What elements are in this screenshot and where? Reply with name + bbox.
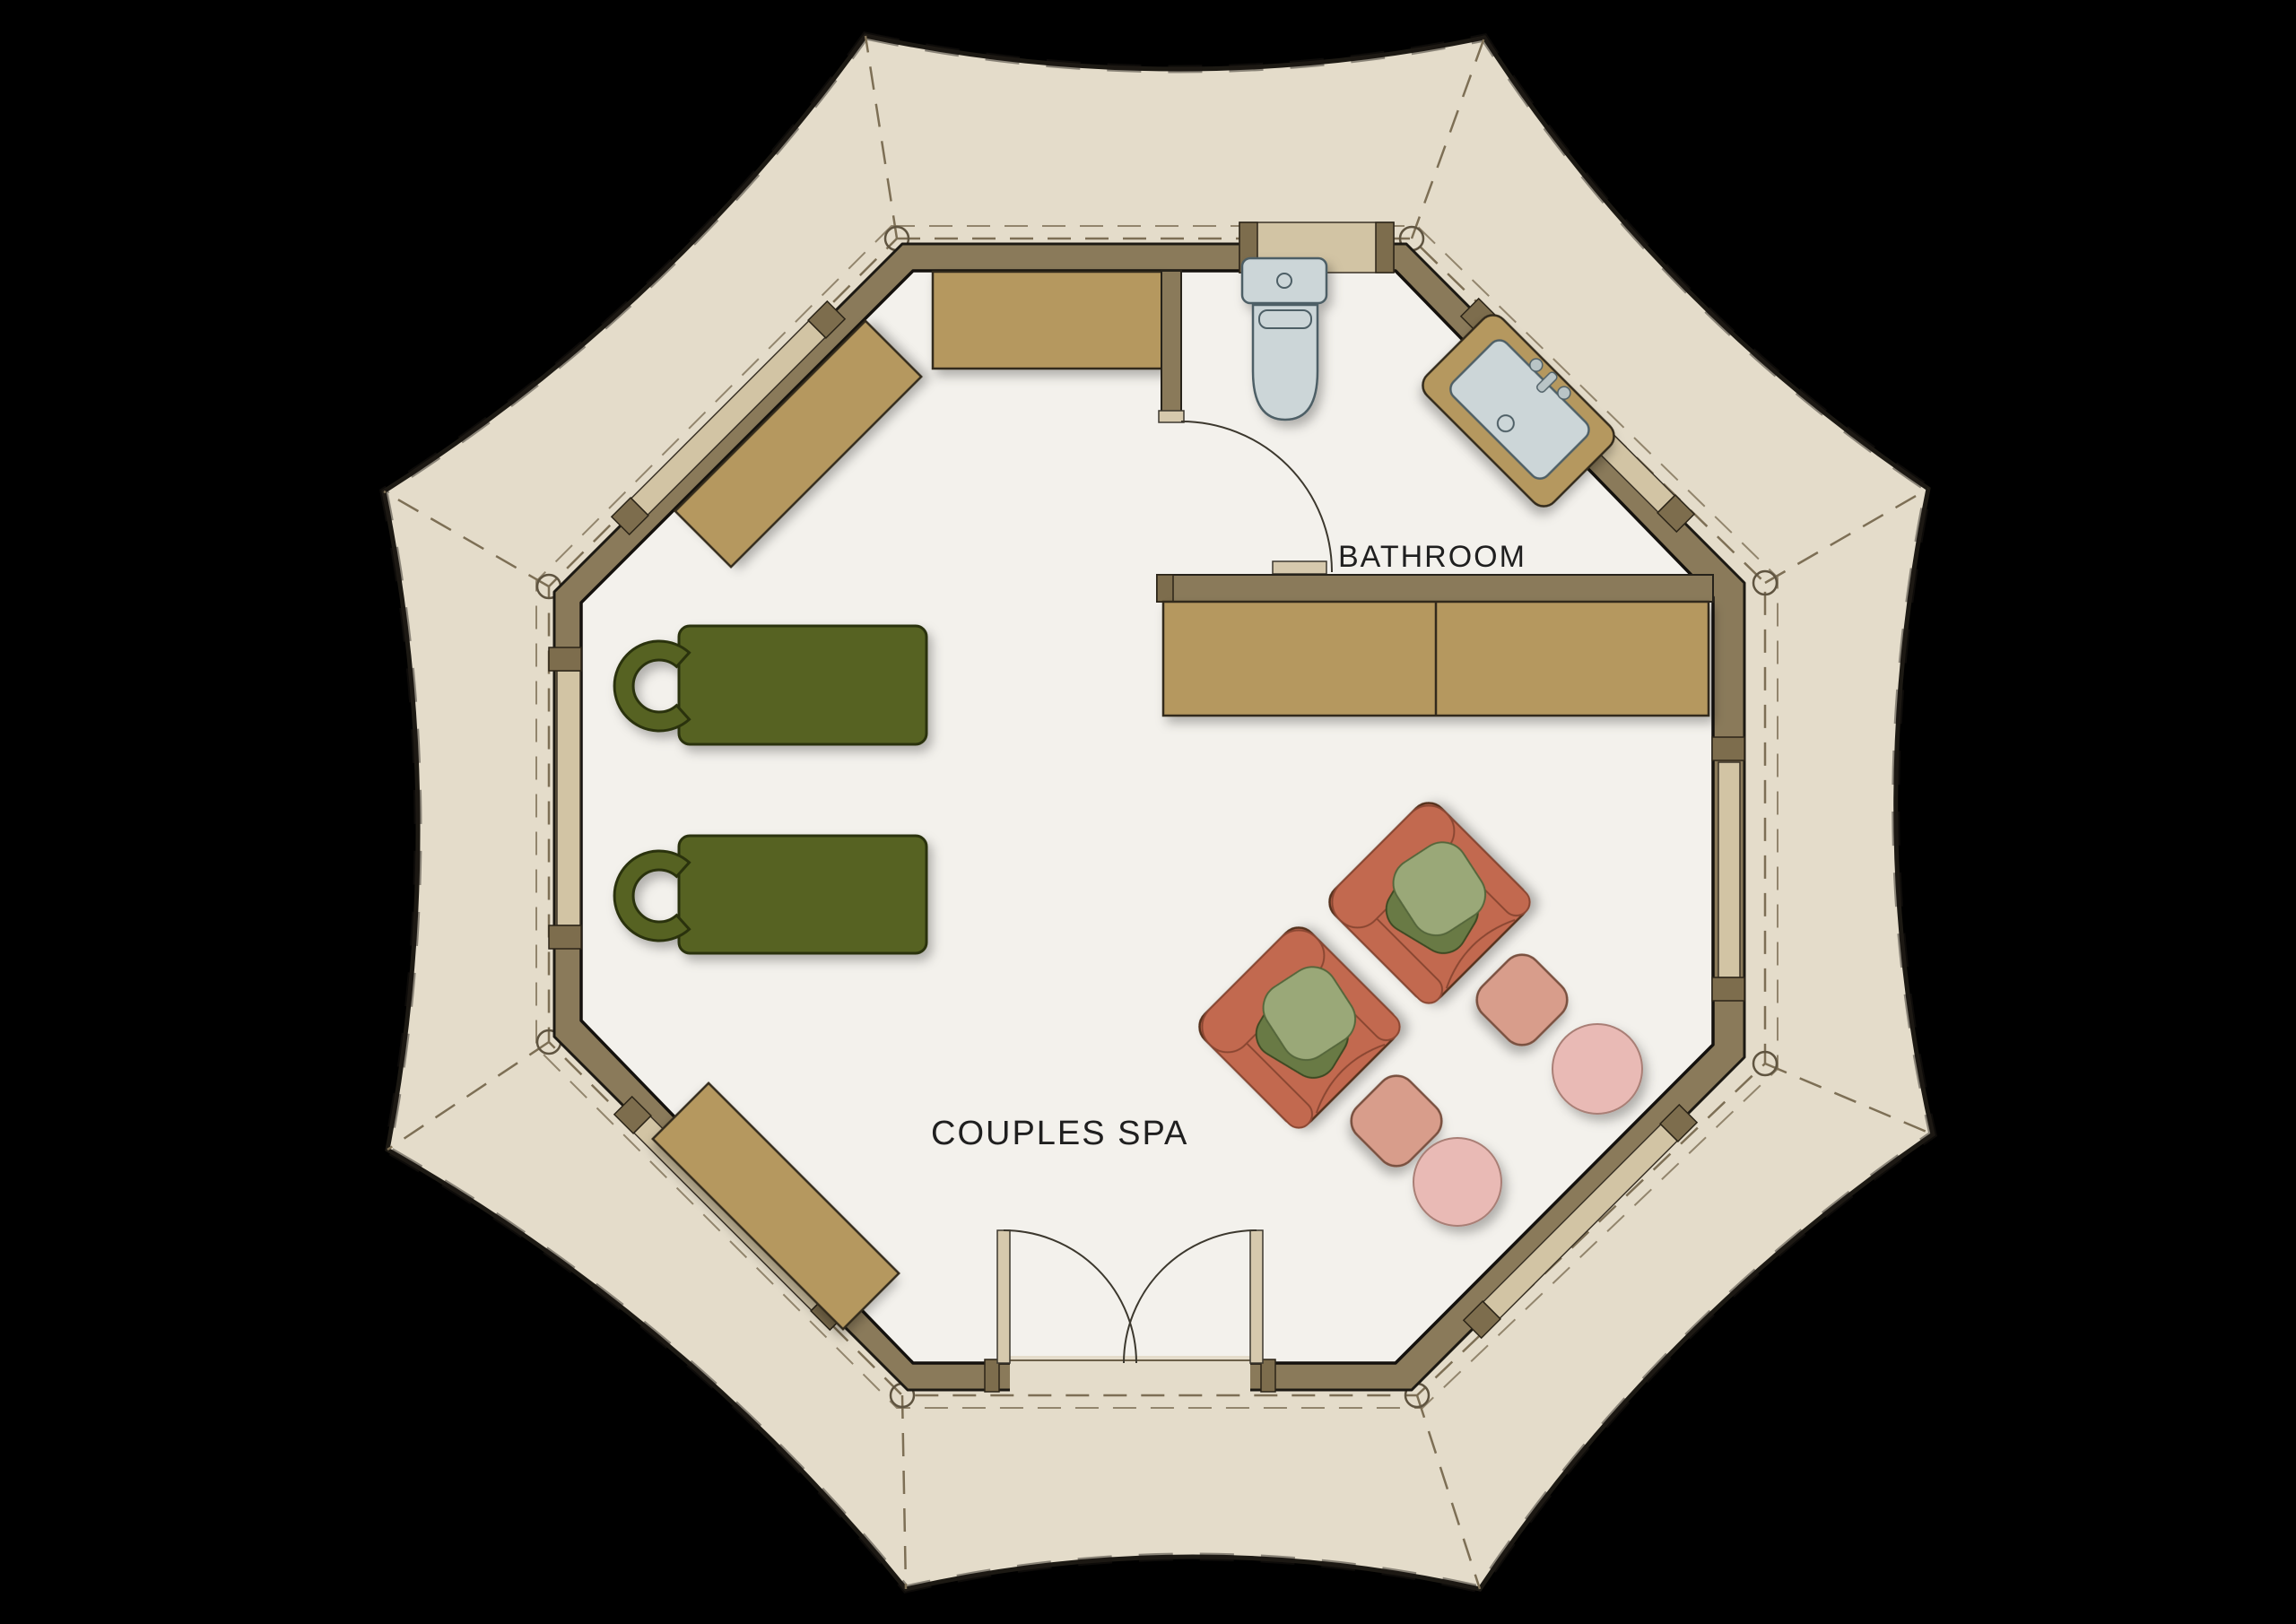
bathroom-partition — [1159, 271, 1184, 422]
pouf-round-2 — [1413, 1138, 1501, 1226]
bathroom-lower-wall — [1157, 575, 1713, 602]
toilet-icon — [1242, 258, 1326, 420]
floor-plan-svg: BATHROOM COUPLES SPA — [0, 0, 2296, 1624]
label-bathroom: BATHROOM — [1338, 540, 1526, 574]
bathroom-door-leaf — [1273, 561, 1326, 574]
entry-door-leaf-left — [997, 1230, 1010, 1363]
cabinet-top — [933, 272, 1163, 369]
label-couples-spa: COUPLES SPA — [931, 1115, 1188, 1152]
bathroom-cabinets — [1163, 602, 1709, 716]
entry-door-leaf-right — [1250, 1230, 1263, 1363]
entry-opening — [1010, 1356, 1250, 1394]
pouf-round-1 — [1552, 1024, 1642, 1114]
floor-plan: BATHROOM COUPLES SPA — [0, 0, 2296, 1624]
